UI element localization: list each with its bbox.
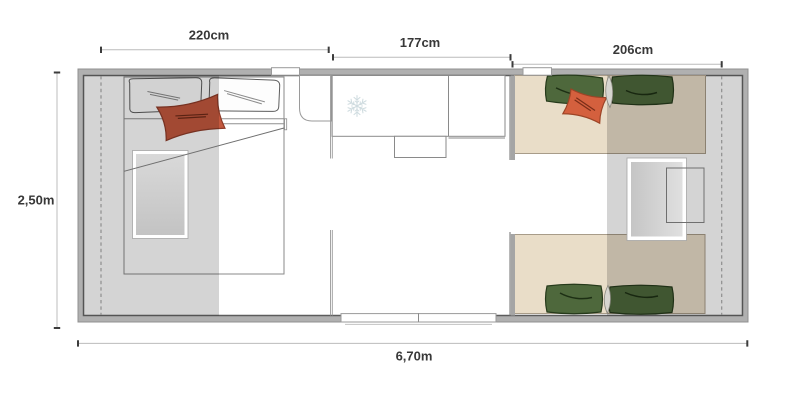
svg-text:220cm: 220cm bbox=[189, 27, 229, 42]
svg-text:206cm: 206cm bbox=[613, 42, 653, 57]
svg-text:2,50m: 2,50m bbox=[18, 193, 55, 208]
svg-text:6,70m: 6,70m bbox=[396, 349, 433, 364]
svg-text:177cm: 177cm bbox=[400, 35, 440, 50]
